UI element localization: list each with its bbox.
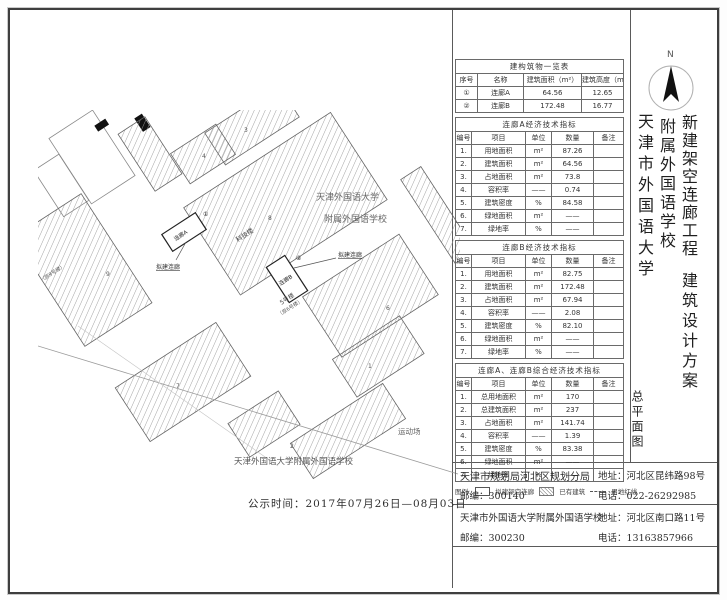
table-cell: 73.8 xyxy=(552,171,594,184)
table-cell: —— xyxy=(552,210,594,223)
table-row: 5.建筑密度%83.38 xyxy=(456,443,624,456)
divider-contact-bottom xyxy=(452,546,717,547)
table-cell: 141.74 xyxy=(552,417,594,430)
table-cell xyxy=(594,333,624,346)
header-cell: 备注 xyxy=(594,255,624,268)
table-cell: —— xyxy=(552,456,594,469)
table-row: 4.容积率——2.08 xyxy=(456,307,624,320)
table-cell: 5. xyxy=(456,320,472,333)
table-cell: ① xyxy=(456,87,478,100)
table-cell: 1.39 xyxy=(552,430,594,443)
table-cell: 1. xyxy=(456,268,472,281)
header-cell: 数量 xyxy=(552,255,594,268)
table-cell: 7. xyxy=(456,346,472,359)
combined-indicator-table: 连廊A、连廊B综合经济技术指标 编号项目单位数量备注 1.总用地面积m²1702… xyxy=(455,363,624,482)
school-label: 附属外国语学校 xyxy=(324,213,387,225)
header-cell: 建筑面积（m²） xyxy=(524,74,582,87)
table-cell xyxy=(594,307,624,320)
table-cell xyxy=(594,268,624,281)
table-cell: 用地面积 xyxy=(472,145,526,158)
callout-a-label: 拟建连廊 xyxy=(156,263,180,271)
table-cell xyxy=(594,404,624,417)
corridor-b-marker: ② xyxy=(296,255,302,262)
table-cell: 84.58 xyxy=(552,197,594,210)
building-num: 8 xyxy=(268,215,272,222)
building-num: 2 xyxy=(290,443,294,450)
table-cell: 总建筑面积 xyxy=(472,404,526,417)
table-cell: 82.75 xyxy=(552,268,594,281)
corridor-b-indicator-table: 连廊B经济技术指标 编号项目单位数量备注 1.用地面积m²82.752.建筑面积… xyxy=(455,240,624,359)
table-cell: 12.65 xyxy=(582,87,624,100)
table-cell: m² xyxy=(526,171,552,184)
table-cell: 5. xyxy=(456,443,472,456)
table-cell: 绿地率 xyxy=(472,223,526,236)
table-cell: 64.56 xyxy=(524,87,582,100)
table-row: 5.建筑密度%84.58 xyxy=(456,197,624,210)
table-cell: 67.94 xyxy=(552,294,594,307)
table-cell: —— xyxy=(526,430,552,443)
table-row: 4.容积率——0.74 xyxy=(456,184,624,197)
header-cell: 单位 xyxy=(526,132,552,145)
publish-time: 公示时间：2017年07月26日—08月03日 xyxy=(248,496,467,511)
table-cell: 建筑密度 xyxy=(472,197,526,210)
table-cell: ② xyxy=(456,100,478,113)
title-project-col2: 附属外国语学校 xyxy=(654,118,678,251)
header-cell: 编号 xyxy=(456,378,472,391)
table-cell: 87.26 xyxy=(552,145,594,158)
table-row: ②连廊B172.4816.77 xyxy=(456,100,624,113)
table-cell: 172.48 xyxy=(552,281,594,294)
corridor-a-marker: ① xyxy=(203,211,208,218)
contact-org: 天津市规划局河北区规划分局 xyxy=(460,468,590,483)
table-cell: 建筑面积 xyxy=(472,158,526,171)
table-cell xyxy=(594,294,624,307)
table-header-row: 编号项目单位数量备注 xyxy=(456,378,624,391)
table-row: 2.总建筑面积m²237 xyxy=(456,404,624,417)
table-row: 4.容积率——1.39 xyxy=(456,430,624,443)
table-cell: m² xyxy=(526,294,552,307)
title-project-col3: 天津市外国语大学 xyxy=(632,113,656,281)
table-cell: 绿地率 xyxy=(472,346,526,359)
header-cell: 单位 xyxy=(526,255,552,268)
north-arrow-icon: N xyxy=(640,46,702,116)
table-cell: m² xyxy=(526,456,552,469)
table-row: 1.用地面积m²87.26 xyxy=(456,145,624,158)
title-scheme: 建筑设计方案 xyxy=(676,272,700,392)
header-cell: 数量 xyxy=(552,132,594,145)
building-num: 1 xyxy=(368,363,372,370)
header-cell: 项目 xyxy=(472,132,526,145)
table-row: 7.绿地率%—— xyxy=(456,346,624,359)
table-cell: 237 xyxy=(552,404,594,417)
table-cell: 容积率 xyxy=(472,184,526,197)
table-cell: 6. xyxy=(456,456,472,469)
drawing-name: 总平面图 xyxy=(629,390,646,450)
table-cell: 占地面积 xyxy=(472,171,526,184)
header-cell: 项目 xyxy=(472,255,526,268)
table-cell: 1. xyxy=(456,391,472,404)
table-title: 连廊A经济技术指标 xyxy=(456,118,624,132)
table-title: 连廊A、连廊B综合经济技术指标 xyxy=(456,364,624,378)
site-label: 天津外国语大学附属外国语学校 xyxy=(234,456,354,467)
building-outline xyxy=(49,110,135,204)
table-cell: m² xyxy=(526,145,552,158)
table-title-row: 建构筑物一览表 xyxy=(456,60,624,74)
table-cell: 容积率 xyxy=(472,307,526,320)
table-cell: 5. xyxy=(456,197,472,210)
table-row: ①连廊A64.5612.65 xyxy=(456,87,624,100)
table-row: 3.占地面积m²67.94 xyxy=(456,294,624,307)
table-cell: m² xyxy=(526,210,552,223)
table-row: 6.绿地面积m²—— xyxy=(456,210,624,223)
contact-address: 地址：河北区昆纬路98号 xyxy=(598,468,705,482)
table-row: 3.占地面积m²141.74 xyxy=(456,417,624,430)
contact-org: 天津市外国语大学附属外国语学校 xyxy=(460,510,603,524)
table-cell: m² xyxy=(526,417,552,430)
table-cell: m² xyxy=(526,391,552,404)
table-cell xyxy=(594,443,624,456)
table-cell: 7. xyxy=(456,223,472,236)
table-cell: —— xyxy=(552,223,594,236)
building-num: 3 xyxy=(244,127,248,134)
tables-column: 建构筑物一览表 序号名称建筑面积（m²）建筑高度（m） ①连廊A64.5612.… xyxy=(455,59,623,496)
header-cell: 建筑高度（m） xyxy=(582,74,624,87)
table-cell: 绿地面积 xyxy=(472,333,526,346)
table-cell: 绿地面积 xyxy=(472,456,526,469)
table-cell xyxy=(594,223,624,236)
table-cell: m² xyxy=(526,281,552,294)
table-cell: 0.74 xyxy=(552,184,594,197)
header-cell: 单位 xyxy=(526,378,552,391)
table-cell: m² xyxy=(526,158,552,171)
table-row: 3.占地面积m²73.8 xyxy=(456,171,624,184)
table-cell xyxy=(594,281,624,294)
table-cell: 容积率 xyxy=(472,430,526,443)
table-cell: 82.10 xyxy=(552,320,594,333)
table-cell: —— xyxy=(552,346,594,359)
north-label: N xyxy=(667,50,674,60)
table-cell: 64.56 xyxy=(552,158,594,171)
table-row: 6.绿地面积m²—— xyxy=(456,456,624,469)
table-title-row: 连廊B经济技术指标 xyxy=(456,241,624,255)
table-cell: 6. xyxy=(456,210,472,223)
table-cell: 连廊A xyxy=(478,87,524,100)
table-cell: 2. xyxy=(456,404,472,417)
table-cell xyxy=(594,320,624,333)
callout-b-label: 拟建连廊 xyxy=(338,251,362,259)
table-cell: 3. xyxy=(456,417,472,430)
table-header-row: 编号项目单位数量备注 xyxy=(456,132,624,145)
table-cell: —— xyxy=(526,307,552,320)
table-cell: 1. xyxy=(456,145,472,158)
table-cell: 3. xyxy=(456,294,472,307)
header-cell: 数量 xyxy=(552,378,594,391)
table-cell xyxy=(594,171,624,184)
building-hatched xyxy=(401,167,460,264)
legend-existing-label: 已有建筑 xyxy=(559,486,585,496)
contact-address: 地址：河北区南口路11号 xyxy=(598,510,705,524)
table-cell: m² xyxy=(526,268,552,281)
table-row: 6.绿地面积m²—— xyxy=(456,333,624,346)
table-cell xyxy=(594,346,624,359)
table-header-row: 序号名称建筑面积（m²）建筑高度（m） xyxy=(456,74,624,87)
table-cell xyxy=(594,197,624,210)
building-num: 9 xyxy=(106,271,110,278)
drawing-sheet: 连廊A 连廊B ① ② 拟建连廊 拟建连廊 科技楼 8 3 4 9 7 6 1 … xyxy=(8,8,719,594)
table-cell: 总用地面积 xyxy=(472,391,526,404)
table-title-row: 连廊A经济技术指标 xyxy=(456,118,624,132)
table-cell: —— xyxy=(552,333,594,346)
header-cell: 备注 xyxy=(594,378,624,391)
table-cell xyxy=(594,145,624,158)
table-row: 2.建筑面积m²64.56 xyxy=(456,158,624,171)
building-solid xyxy=(94,119,109,132)
header-cell: 名称 xyxy=(478,74,524,87)
buildings-overview-table: 建构筑物一览表 序号名称建筑面积（m²）建筑高度（m） ①连廊A64.5612.… xyxy=(455,59,624,113)
corridor-a-indicator-table: 连廊A经济技术指标 编号项目单位数量备注 1.用地面积m²87.262.建筑面积… xyxy=(455,117,624,236)
table-cell: 16.77 xyxy=(582,100,624,113)
contact-postcode: 邮编：300140 xyxy=(460,488,525,502)
table-cell xyxy=(594,391,624,404)
contact-postcode: 邮编：300230 xyxy=(460,530,525,544)
table-title: 建构筑物一览表 xyxy=(456,60,624,74)
table-cell: 2.08 xyxy=(552,307,594,320)
header-cell: 编号 xyxy=(456,132,472,145)
table-row: 1.总用地面积m²170 xyxy=(456,391,624,404)
table-cell: 83.38 xyxy=(552,443,594,456)
table-cell: % xyxy=(526,197,552,210)
table-cell: % xyxy=(526,443,552,456)
table-cell: 建筑密度 xyxy=(472,320,526,333)
table-cell xyxy=(594,158,624,171)
header-cell: 备注 xyxy=(594,132,624,145)
table-cell xyxy=(594,210,624,223)
table-header-row: 编号项目单位数量备注 xyxy=(456,255,624,268)
contact-phone: 电话：022-26292985 xyxy=(598,488,696,502)
table-cell: 6. xyxy=(456,333,472,346)
table-cell xyxy=(594,417,624,430)
table-cell xyxy=(594,430,624,443)
table-cell: % xyxy=(526,320,552,333)
table-cell: 170 xyxy=(552,391,594,404)
divider-contact-mid xyxy=(452,504,717,505)
university-label: 天津外国语大学 xyxy=(316,191,379,203)
playground-label: 运动场 xyxy=(398,426,421,436)
table-row: 7.绿地率%—— xyxy=(456,223,624,236)
building-num: 4 xyxy=(202,153,206,160)
table-cell: 连廊B xyxy=(478,100,524,113)
existing-building-swatch-icon xyxy=(539,487,554,496)
table-cell: 3. xyxy=(456,171,472,184)
table-cell: m² xyxy=(526,333,552,346)
table-cell: 占地面积 xyxy=(472,294,526,307)
table-cell: 2. xyxy=(456,281,472,294)
table-title: 连廊B经济技术指标 xyxy=(456,241,624,255)
table-cell xyxy=(594,456,624,469)
table-cell: 4. xyxy=(456,430,472,443)
table-cell: 4. xyxy=(456,307,472,320)
table-row: 2.建筑面积m²172.48 xyxy=(456,281,624,294)
contact-phone: 电话：13163857966 xyxy=(598,530,693,544)
table-cell: 占地面积 xyxy=(472,417,526,430)
table-cell: 建筑密度 xyxy=(472,443,526,456)
table-title-row: 连廊A、连廊B综合经济技术指标 xyxy=(456,364,624,378)
table-cell: 用地面积 xyxy=(472,268,526,281)
table-cell: 172.48 xyxy=(524,100,582,113)
table-cell: m² xyxy=(526,404,552,417)
building-num: 6 xyxy=(386,305,390,312)
table-cell: % xyxy=(526,346,552,359)
table-cell: 2. xyxy=(456,158,472,171)
header-cell: 项目 xyxy=(472,378,526,391)
header-cell: 序号 xyxy=(456,74,478,87)
table-row: 1.用地面积m²82.75 xyxy=(456,268,624,281)
table-cell xyxy=(594,184,624,197)
site-plan-map: 连廊A 连廊B ① ② 拟建连廊 拟建连廊 科技楼 8 3 4 9 7 6 1 … xyxy=(38,110,460,482)
table-cell: % xyxy=(526,223,552,236)
title-project-col1: 新建架空连廊工程 xyxy=(676,114,700,258)
header-cell: 编号 xyxy=(456,255,472,268)
table-cell: 建筑面积 xyxy=(472,281,526,294)
table-cell: 绿地面积 xyxy=(472,210,526,223)
table-row: 5.建筑密度%82.10 xyxy=(456,320,624,333)
table-cell: —— xyxy=(526,184,552,197)
table-cell: 4. xyxy=(456,184,472,197)
